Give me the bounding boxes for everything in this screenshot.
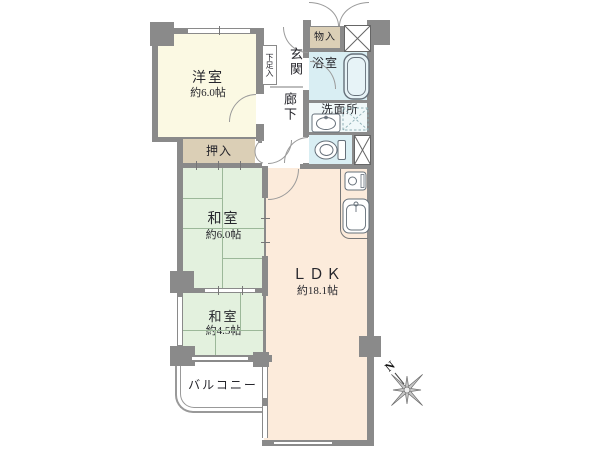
balcony-label: バルコニー — [183, 378, 263, 393]
compass-north-label: N — [382, 358, 398, 375]
shoe-storage-box: 下足入 — [262, 45, 277, 85]
opening-western-door — [256, 94, 264, 124]
window-tatami45-bottom — [192, 356, 248, 361]
entrance-label: 玄関 — [286, 47, 305, 77]
gas-stove-icon — [344, 171, 367, 191]
tatami-line — [222, 166, 223, 228]
wall-left-upper — [152, 28, 158, 141]
kitchen-sink-icon — [342, 198, 370, 234]
window-tatami45-left — [177, 297, 183, 345]
floor-plan: 洋室 約6.0帖 押入 和室 約6.0帖 和室 約4.5帖 ＬＤＫ 約18.1帖… — [0, 0, 600, 450]
room-tatami45: 和室 約4.5帖 — [183, 293, 264, 355]
window-tick — [219, 26, 220, 35]
wall-bath-washroom — [309, 100, 371, 103]
sliding-tick — [242, 286, 243, 295]
column-balcony-corner — [253, 352, 269, 367]
sliding-tick — [218, 161, 219, 170]
tatami-line — [240, 293, 241, 330]
washbasin-icon — [311, 113, 341, 133]
room-tatami45-size: 約4.5帖 — [206, 325, 242, 339]
bathtub-icon — [343, 53, 370, 100]
sliding-tatami45-ldk — [263, 296, 266, 354]
window-ldk-bottom — [274, 441, 332, 445]
closet-oshiire-label: 押入 — [206, 144, 232, 159]
tatami-line — [183, 198, 222, 199]
room-western-label: 洋室 — [192, 70, 224, 88]
toilet-icon — [313, 138, 348, 162]
hallway-label: 廊下 — [280, 92, 299, 122]
sliding-tick — [261, 218, 270, 219]
door-arc-entry-left — [309, 2, 339, 26]
room-tatami45-label: 和室 — [208, 309, 238, 325]
room-tatami6: 和室 約6.0帖 — [183, 166, 264, 288]
sliding-tick — [240, 161, 241, 170]
tatami-line — [183, 228, 264, 229]
sliding-tick — [218, 286, 219, 295]
room-ldk-label: ＬＤＫ — [292, 266, 343, 285]
pipe-space-icon — [354, 135, 371, 165]
storage-monoire: 物入 — [309, 26, 341, 50]
room-western-size: 約6.0帖 — [190, 87, 226, 101]
sliding-tick — [261, 242, 270, 243]
closet-oshiire: 押入 — [183, 139, 255, 163]
room-tatami6-size: 約6.0帖 — [206, 229, 242, 243]
entry-step-line — [270, 86, 303, 88]
wall-western-bottom — [158, 137, 258, 139]
door-arc-entry-right — [339, 2, 369, 26]
bifold-door-icon — [254, 139, 264, 164]
room-ldk-size: 約18.1帖 — [297, 285, 338, 299]
tatami-line — [215, 330, 216, 355]
washing-machine-space-icon — [342, 107, 369, 131]
tatami-divider-opening — [205, 288, 255, 293]
tatami-line — [222, 258, 264, 259]
pipe-space-icon — [344, 25, 371, 52]
shoe-storage-label: 下足入 — [264, 53, 275, 77]
sliding-tick — [196, 161, 197, 170]
window-ldk-balcony-stub — [262, 398, 268, 406]
room-tatami6-label: 和室 — [208, 211, 240, 229]
storage-monoire-label: 物入 — [314, 32, 336, 45]
wall-oshiire-bottom — [177, 163, 264, 168]
tatami-line — [183, 330, 264, 331]
compass-rose-icon: N — [374, 352, 442, 424]
sliding-tatami6-ldk — [264, 198, 266, 256]
